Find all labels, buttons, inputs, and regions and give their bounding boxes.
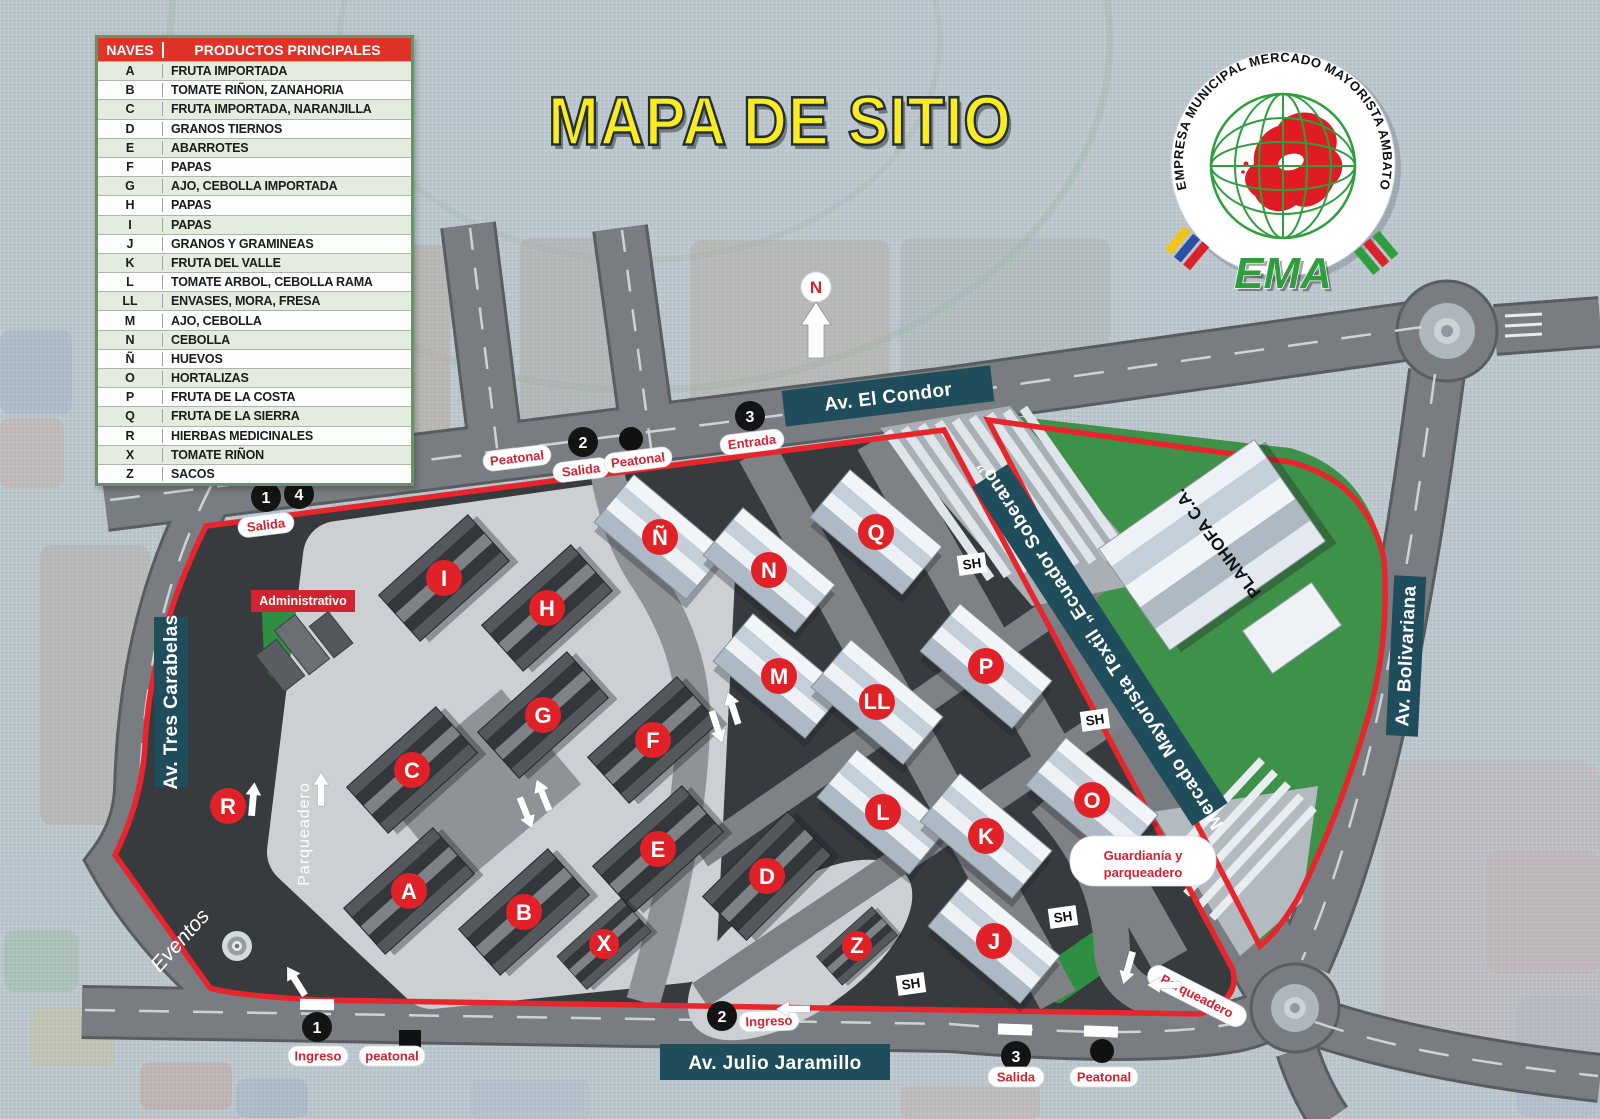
legend-col-naves: NAVES bbox=[98, 42, 164, 58]
svg-text:Administrativo: Administrativo bbox=[259, 594, 347, 608]
pill-ingreso-bottomcenter: Ingreso bbox=[739, 1010, 800, 1032]
logo-globe bbox=[1211, 94, 1355, 238]
legend-table: NAVES PRODUCTOS PRINCIPALES AFRUTA IMPOR… bbox=[95, 35, 414, 486]
svg-text:G: G bbox=[534, 703, 551, 728]
legend-header: NAVES PRODUCTOS PRINCIPALES bbox=[98, 38, 411, 61]
legend-row: FPAPAS bbox=[98, 157, 411, 176]
north-label: N bbox=[810, 278, 822, 297]
logo-ema-label: EMA bbox=[1234, 249, 1332, 298]
svg-text:P: P bbox=[979, 654, 994, 679]
pedestrian-square-bottom bbox=[399, 1030, 421, 1048]
access-2-top: 2 bbox=[568, 427, 598, 457]
svg-text:M: M bbox=[770, 664, 788, 689]
access-2-bottom: 2 bbox=[707, 1001, 737, 1031]
pill-guardiania: Guardianía y parqueadero bbox=[1070, 836, 1216, 886]
svg-text:C: C bbox=[404, 758, 420, 783]
svg-text:I: I bbox=[441, 566, 447, 591]
legend-row: ÑHUEVOS bbox=[98, 349, 411, 368]
legend-row: RHIERBAS MEDICINALES bbox=[98, 426, 411, 445]
access-3-bottom: 3 bbox=[1001, 1041, 1031, 1071]
svg-text:J: J bbox=[988, 929, 1000, 954]
svg-text:B: B bbox=[516, 900, 532, 925]
pill-ingreso-bottomleft: Ingreso bbox=[288, 1046, 348, 1066]
legend-row: NCEBOLLA bbox=[98, 330, 411, 349]
access-1-bottom: 1 bbox=[302, 1012, 332, 1042]
svg-text:Peatonal: Peatonal bbox=[1077, 1070, 1131, 1085]
legend-row: HPAPAS bbox=[98, 195, 411, 214]
administrativo-label: Administrativo bbox=[251, 590, 355, 612]
legend-row: CFRUTA IMPORTADA, NARANJILLA bbox=[98, 99, 411, 118]
svg-text:E: E bbox=[651, 837, 666, 862]
svg-text:L: L bbox=[876, 800, 889, 825]
fountain bbox=[222, 931, 252, 961]
svg-text:K: K bbox=[978, 824, 994, 849]
svg-text:SH: SH bbox=[1085, 711, 1106, 728]
svg-text:Salida: Salida bbox=[997, 1070, 1036, 1085]
marker-r: R bbox=[210, 788, 246, 824]
legend-row: ZSACOS bbox=[98, 464, 411, 483]
svg-text:SH: SH bbox=[962, 555, 983, 572]
svg-text:Ñ: Ñ bbox=[652, 525, 668, 550]
svg-text:X: X bbox=[597, 931, 612, 956]
svg-text:LL: LL bbox=[864, 689, 891, 714]
pedestrian-dot-top bbox=[619, 427, 643, 451]
access-1-top: 1 bbox=[251, 482, 281, 512]
svg-text:D: D bbox=[759, 864, 775, 889]
legend-row: QFRUTA DE LA SIERRA bbox=[98, 406, 411, 425]
svg-text:F: F bbox=[646, 728, 659, 753]
legend-row: AFRUTA IMPORTADA bbox=[98, 61, 411, 80]
svg-text:A: A bbox=[401, 879, 417, 904]
svg-text:N: N bbox=[761, 558, 777, 583]
svg-text:Av. Julio Jaramillo: Av. Julio Jaramillo bbox=[688, 1053, 861, 1074]
svg-text:Av. Tres Carabelas: Av. Tres Carabelas bbox=[161, 614, 182, 789]
svg-text:Guardianía y: Guardianía y bbox=[1104, 848, 1184, 863]
svg-text:Z: Z bbox=[850, 933, 863, 958]
legend-row: XTOMATE RIÑON bbox=[98, 445, 411, 464]
legend-row: IPAPAS bbox=[98, 215, 411, 234]
legend-col-productos: PRODUCTOS PRINCIPALES bbox=[164, 42, 411, 58]
svg-text:1: 1 bbox=[313, 1020, 322, 1037]
svg-text:Q: Q bbox=[867, 520, 884, 545]
svg-text:SH: SH bbox=[901, 975, 922, 992]
svg-text:peatonal: peatonal bbox=[365, 1049, 418, 1064]
pill-salida-bottomright: Salida bbox=[988, 1067, 1044, 1087]
road-stub-north-2 bbox=[620, 228, 650, 450]
svg-text:3: 3 bbox=[746, 409, 755, 426]
svg-text:Ingreso: Ingreso bbox=[295, 1049, 342, 1064]
legend-row: LTOMATE ARBOL, CEBOLLA RAMA bbox=[98, 272, 411, 291]
pill-peatonal-bottomleft: peatonal bbox=[359, 1046, 425, 1066]
legend-row: KFRUTA DEL VALLE bbox=[98, 253, 411, 272]
svg-text:4: 4 bbox=[295, 487, 304, 504]
svg-text:2: 2 bbox=[718, 1009, 727, 1026]
legend-row: LLENVASES, MORA, FRESA bbox=[98, 291, 411, 310]
page-title: MAPA DE SITIO bbox=[490, 82, 1070, 160]
legend-row: BTOMATE RIÑON, ZANAHORIA bbox=[98, 80, 411, 99]
svg-text:2: 2 bbox=[579, 435, 588, 452]
road-stub-north-1 bbox=[468, 225, 498, 466]
ema-logo: EMPRESA MUNICIPAL MERCADO MAYORISTA AMBA… bbox=[1158, 14, 1410, 314]
svg-text:SH: SH bbox=[1053, 908, 1074, 925]
svg-text:R: R bbox=[220, 794, 236, 819]
legend-row: JGRANOS Y GRAMINEAS bbox=[98, 234, 411, 253]
svg-text:1: 1 bbox=[262, 490, 271, 507]
legend-row: PFRUTA DE LA COSTA bbox=[98, 387, 411, 406]
svg-text:3: 3 bbox=[1012, 1049, 1021, 1066]
svg-text:parqueadero: parqueadero bbox=[1104, 865, 1183, 880]
legend-row: GAJO, CEBOLLA IMPORTADA bbox=[98, 176, 411, 195]
banner-av-julio-jaramillo: Av. Julio Jaramillo bbox=[660, 1044, 890, 1080]
pill-peatonal-bottomright: Peatonal bbox=[1070, 1067, 1138, 1087]
svg-text:O: O bbox=[1083, 788, 1100, 813]
legend-row: DGRANOS TIERNOS bbox=[98, 119, 411, 138]
banner-av-tres-carabelas: Av. Tres Carabelas bbox=[154, 614, 188, 789]
access-3-top: 3 bbox=[735, 401, 765, 431]
legend-row: EABARROTES bbox=[98, 138, 411, 157]
parqueadero-west-label: Parqueadero bbox=[296, 782, 313, 886]
pedestrian-dot-bottom bbox=[1090, 1039, 1114, 1063]
legend-row: OHORTALIZAS bbox=[98, 368, 411, 387]
svg-text:H: H bbox=[539, 596, 555, 621]
legend-row: MAJO, CEBOLLA bbox=[98, 310, 411, 329]
